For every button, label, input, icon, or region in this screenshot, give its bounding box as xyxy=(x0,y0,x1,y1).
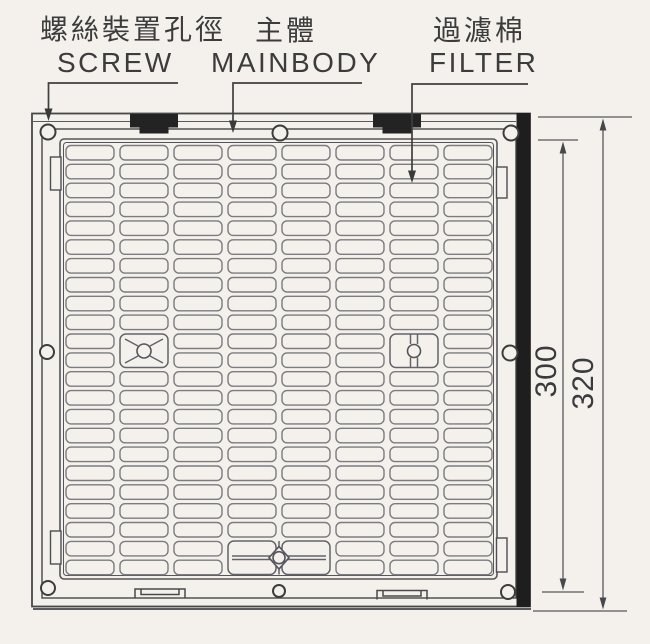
label-mainbody-zh: 主體 xyxy=(255,15,317,46)
screw-hole-mid-right xyxy=(503,346,518,361)
label-mainbody-en: MAINBODY xyxy=(211,47,380,78)
label-screw-en: SCREW xyxy=(57,47,174,78)
frame-right-dark-edge xyxy=(517,113,531,607)
boss-hole-bottom xyxy=(273,552,285,564)
screw-hole-top-right xyxy=(504,126,519,141)
boss-hole-right xyxy=(408,345,421,358)
technical-drawing: 螺絲裝置孔徑 主體 過濾棉 SCREW MAINBODY FILTER 300 … xyxy=(0,0,650,644)
latch-notch-left-bottom xyxy=(51,531,62,564)
latch-notch-right-bottom xyxy=(497,538,508,572)
dim-text-320: 320 xyxy=(567,356,600,409)
latch-notch-right-top xyxy=(497,167,508,198)
screw-hole-top-left xyxy=(41,125,56,140)
latch-notch-left-top xyxy=(51,157,62,190)
screw-hole-bottom-left xyxy=(41,581,55,595)
boss-hole-left xyxy=(137,344,151,358)
screw-hole-mid-left xyxy=(40,345,54,359)
drawing-background xyxy=(0,0,650,644)
screw-hole-top-center xyxy=(273,126,288,141)
label-screw-zh: 螺絲裝置孔徑 xyxy=(40,14,226,45)
screw-hole-bottom-right xyxy=(501,585,515,599)
dim-text-300: 300 xyxy=(530,344,563,397)
screw-hole-bottom-center xyxy=(273,585,285,597)
label-filter-en: FILTER xyxy=(429,47,538,78)
label-filter-zh: 過濾棉 xyxy=(433,15,526,46)
panel-diagram: 螺絲裝置孔徑 主體 過濾棉 SCREW MAINBODY FILTER 300 … xyxy=(0,0,650,644)
